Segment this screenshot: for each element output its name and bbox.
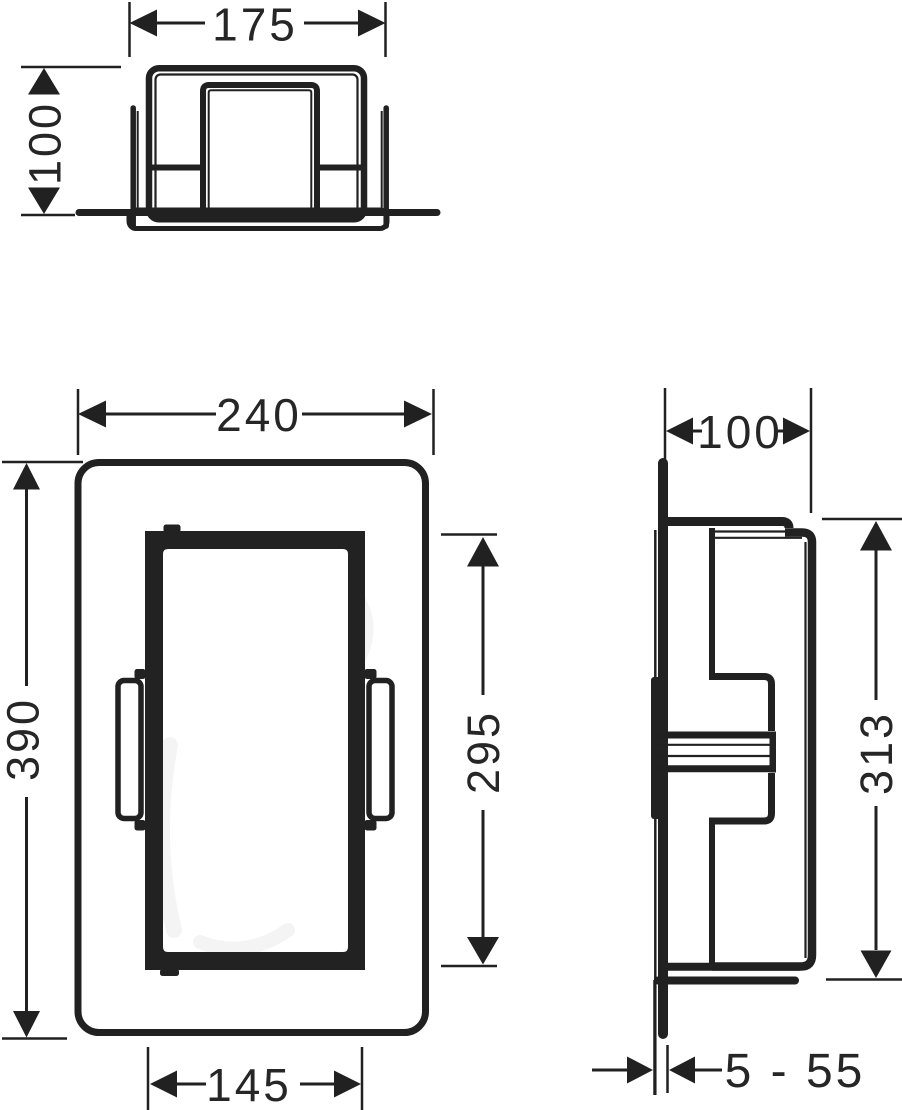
svg-text:175: 175 <box>212 0 298 51</box>
svg-text:5 - 55: 5 - 55 <box>725 1045 866 1098</box>
svg-text:100: 100 <box>697 406 783 458</box>
svg-text:240: 240 <box>216 389 302 441</box>
svg-text:295: 295 <box>458 710 509 794</box>
svg-text:145: 145 <box>206 1059 292 1110</box>
svg-text:100: 100 <box>20 101 71 185</box>
svg-text:390: 390 <box>0 697 49 781</box>
svg-text:313: 313 <box>851 711 902 795</box>
